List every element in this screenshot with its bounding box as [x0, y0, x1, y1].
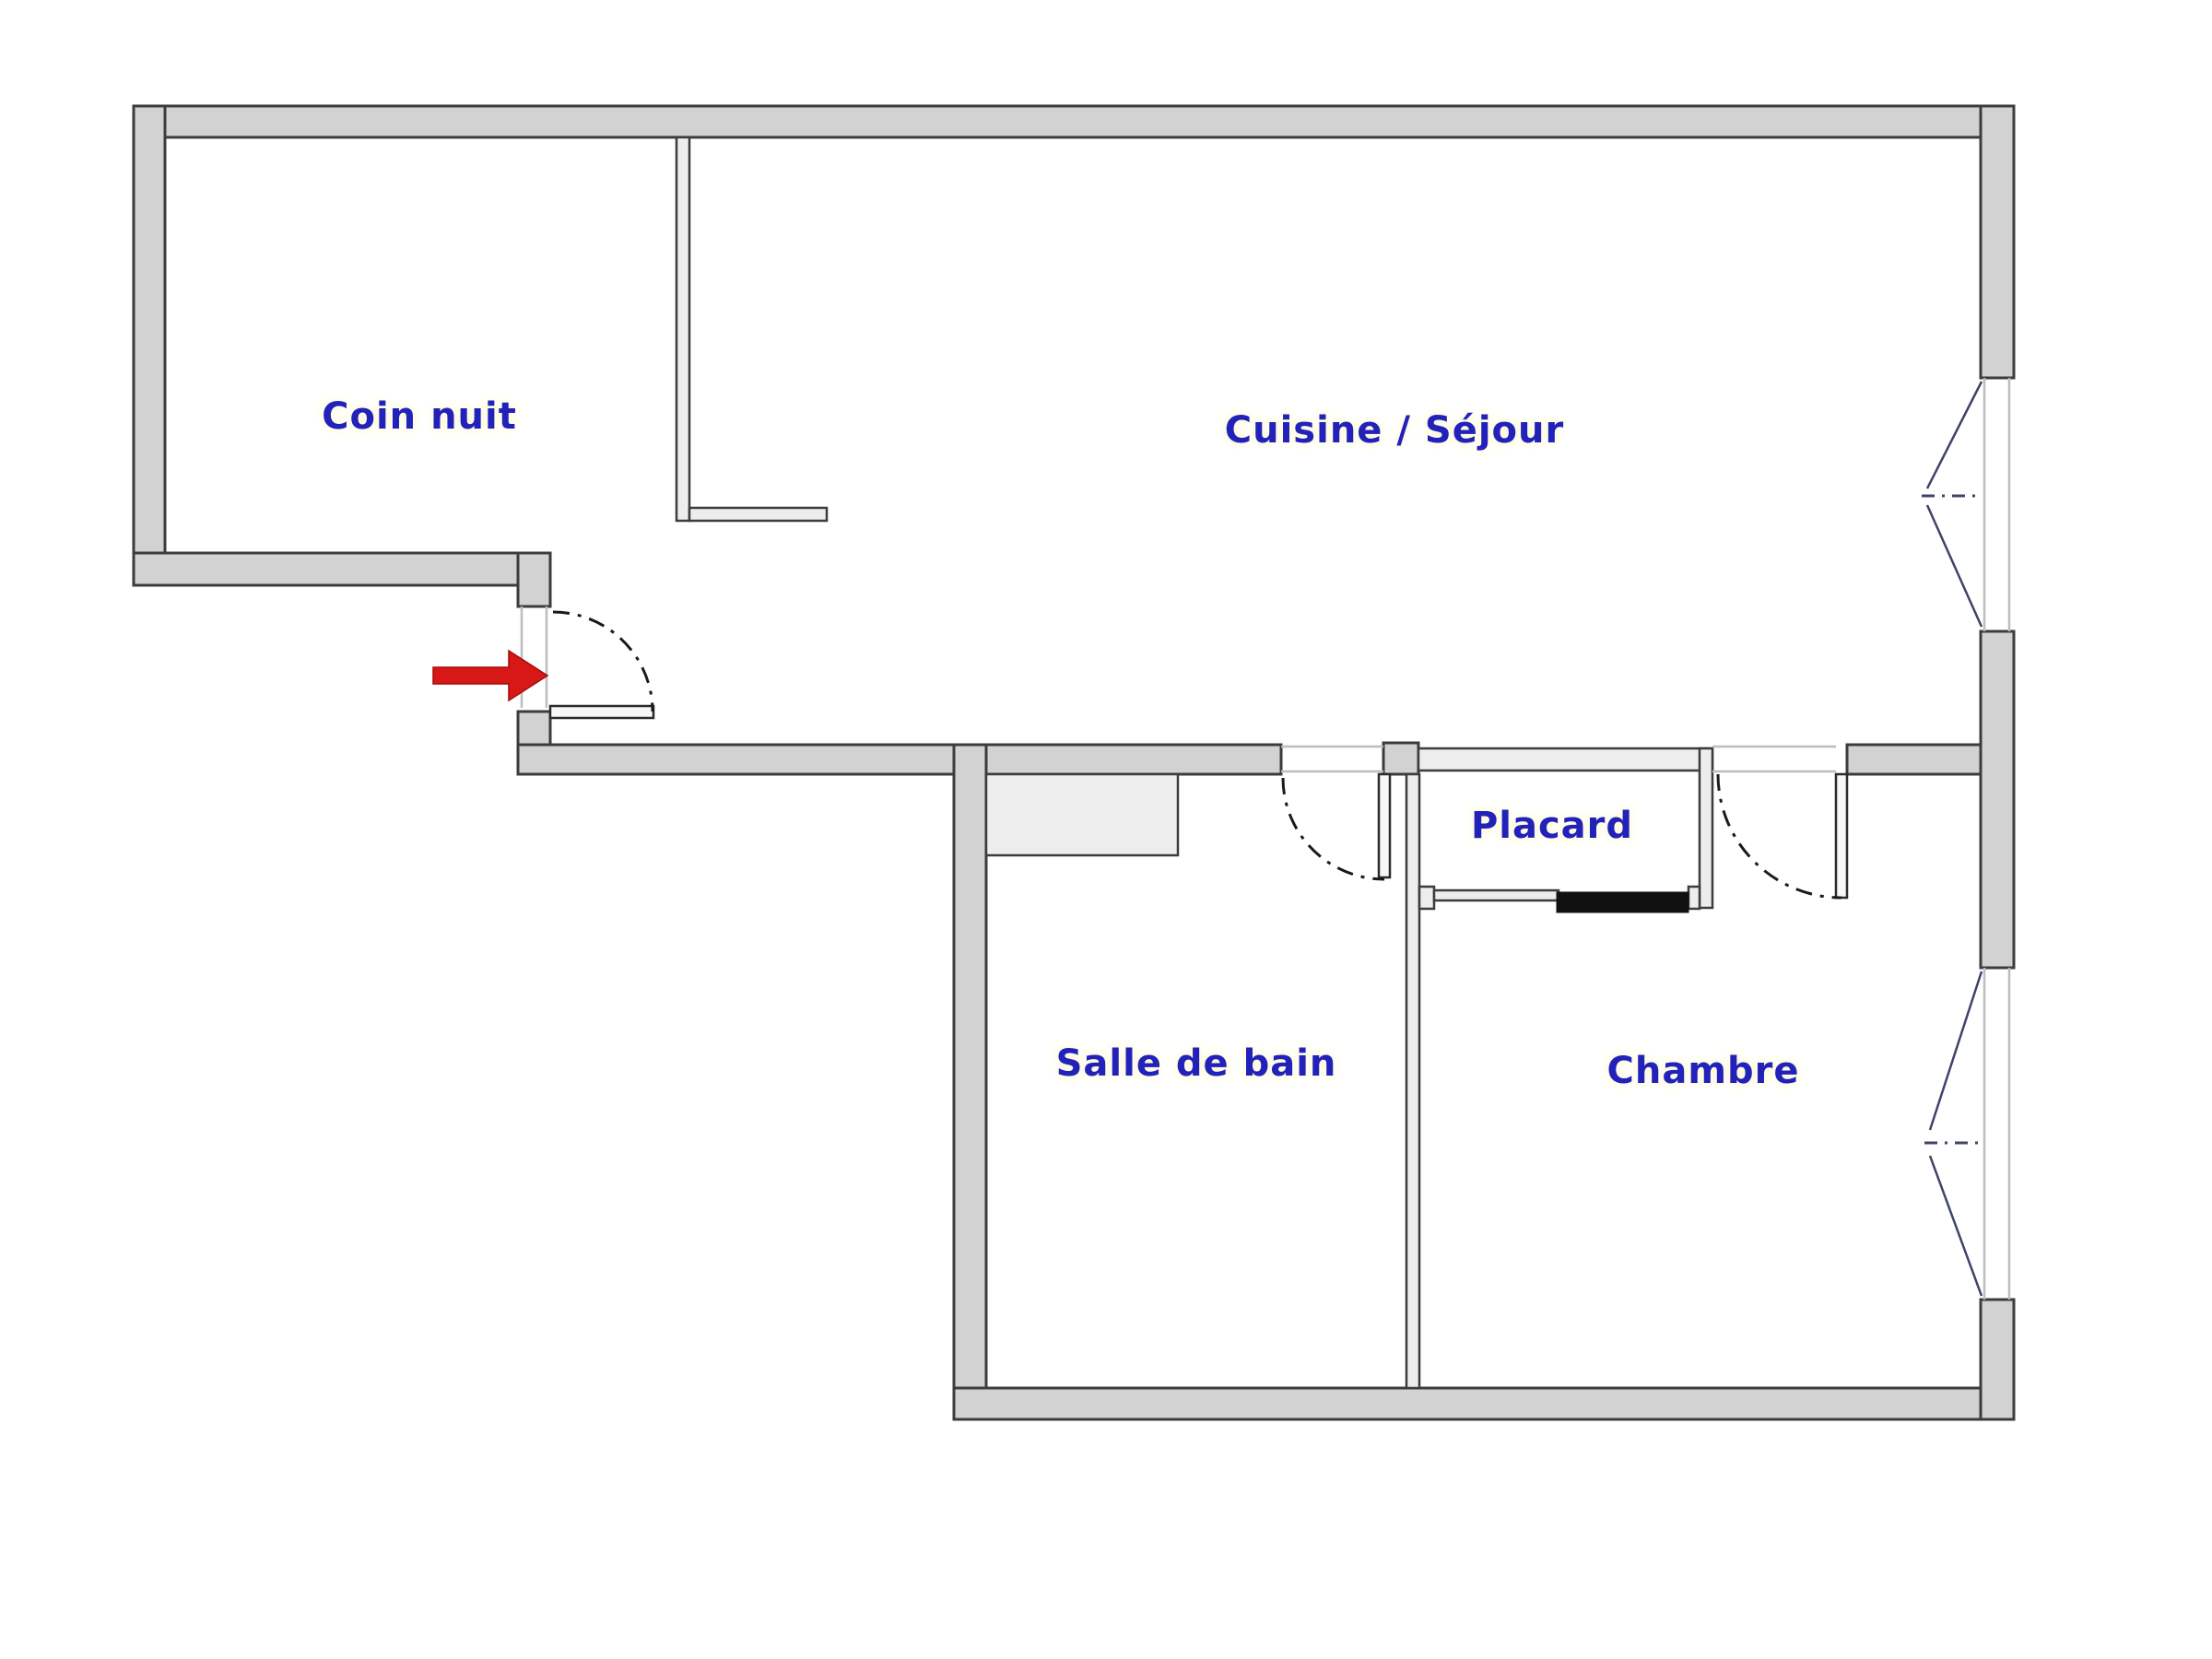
wall-sdb-left	[954, 745, 986, 1419]
wall-placard-jamb-right	[1688, 887, 1700, 909]
room-label-salle-de-bain: Salle de bain	[1056, 1042, 1337, 1085]
wall-sdb-duct-box	[986, 774, 1178, 855]
wall-hallway-south	[518, 745, 1281, 774]
room-label-chambre: Chambre	[1607, 1050, 1800, 1092]
entrance-door-arc	[553, 612, 653, 712]
wall-coin-nuit-bottom	[134, 553, 550, 585]
wall-right-lower	[1981, 1300, 2014, 1419]
window-bottom-glyph	[1924, 971, 1982, 1296]
wall-divider-lip	[689, 508, 827, 521]
wall-post-sdb-door	[1383, 743, 1418, 774]
wall-placard-jamb-left	[1419, 887, 1434, 909]
window-bottom-leaf-upper	[1930, 971, 1982, 1130]
wall-sdb-chambre-divider	[1406, 774, 1419, 1388]
window-top-glyph	[1922, 382, 1982, 627]
door-leaves	[550, 706, 1847, 898]
placard-door-rail	[1434, 890, 1559, 900]
floor-plan-drawing	[0, 0, 2212, 1659]
wall-placard-top	[1418, 748, 1712, 771]
floor-plan-canvas: Coin nuit Cuisine / Séjour Placard Salle…	[0, 0, 2212, 1659]
sdb-door-leaf	[1379, 774, 1390, 877]
wall-coin-nuit-divider	[677, 137, 689, 521]
wall-left	[134, 106, 165, 585]
placard-sliding-door-bar	[1557, 892, 1688, 912]
window-top-leaf-lower	[1927, 505, 1982, 627]
wall-chambre-top-right	[1847, 745, 1981, 774]
exterior-walls	[134, 106, 2014, 1419]
wall-right-upper	[1981, 106, 2014, 378]
window-top-leaf-upper	[1927, 382, 1982, 488]
wall-entrance-step-upper	[518, 553, 550, 606]
window-bottom-leaf-lower	[1930, 1156, 1982, 1296]
room-label-placard: Placard	[1471, 805, 1633, 847]
wall-placard-right	[1700, 748, 1712, 908]
room-label-coin-nuit: Coin nuit	[322, 395, 517, 438]
chambre-door-leaf	[1836, 774, 1847, 898]
wall-right-middle	[1981, 631, 2014, 968]
wall-top	[134, 106, 2014, 137]
room-label-cuisine-sejour: Cuisine / Séjour	[1225, 409, 1564, 452]
entrance-arrow-icon	[433, 651, 547, 700]
chambre-door-arc	[1718, 774, 1841, 898]
wall-bottom	[954, 1388, 2014, 1419]
entrance-door-leaf	[550, 706, 653, 718]
sdb-door-arc	[1283, 778, 1384, 879]
